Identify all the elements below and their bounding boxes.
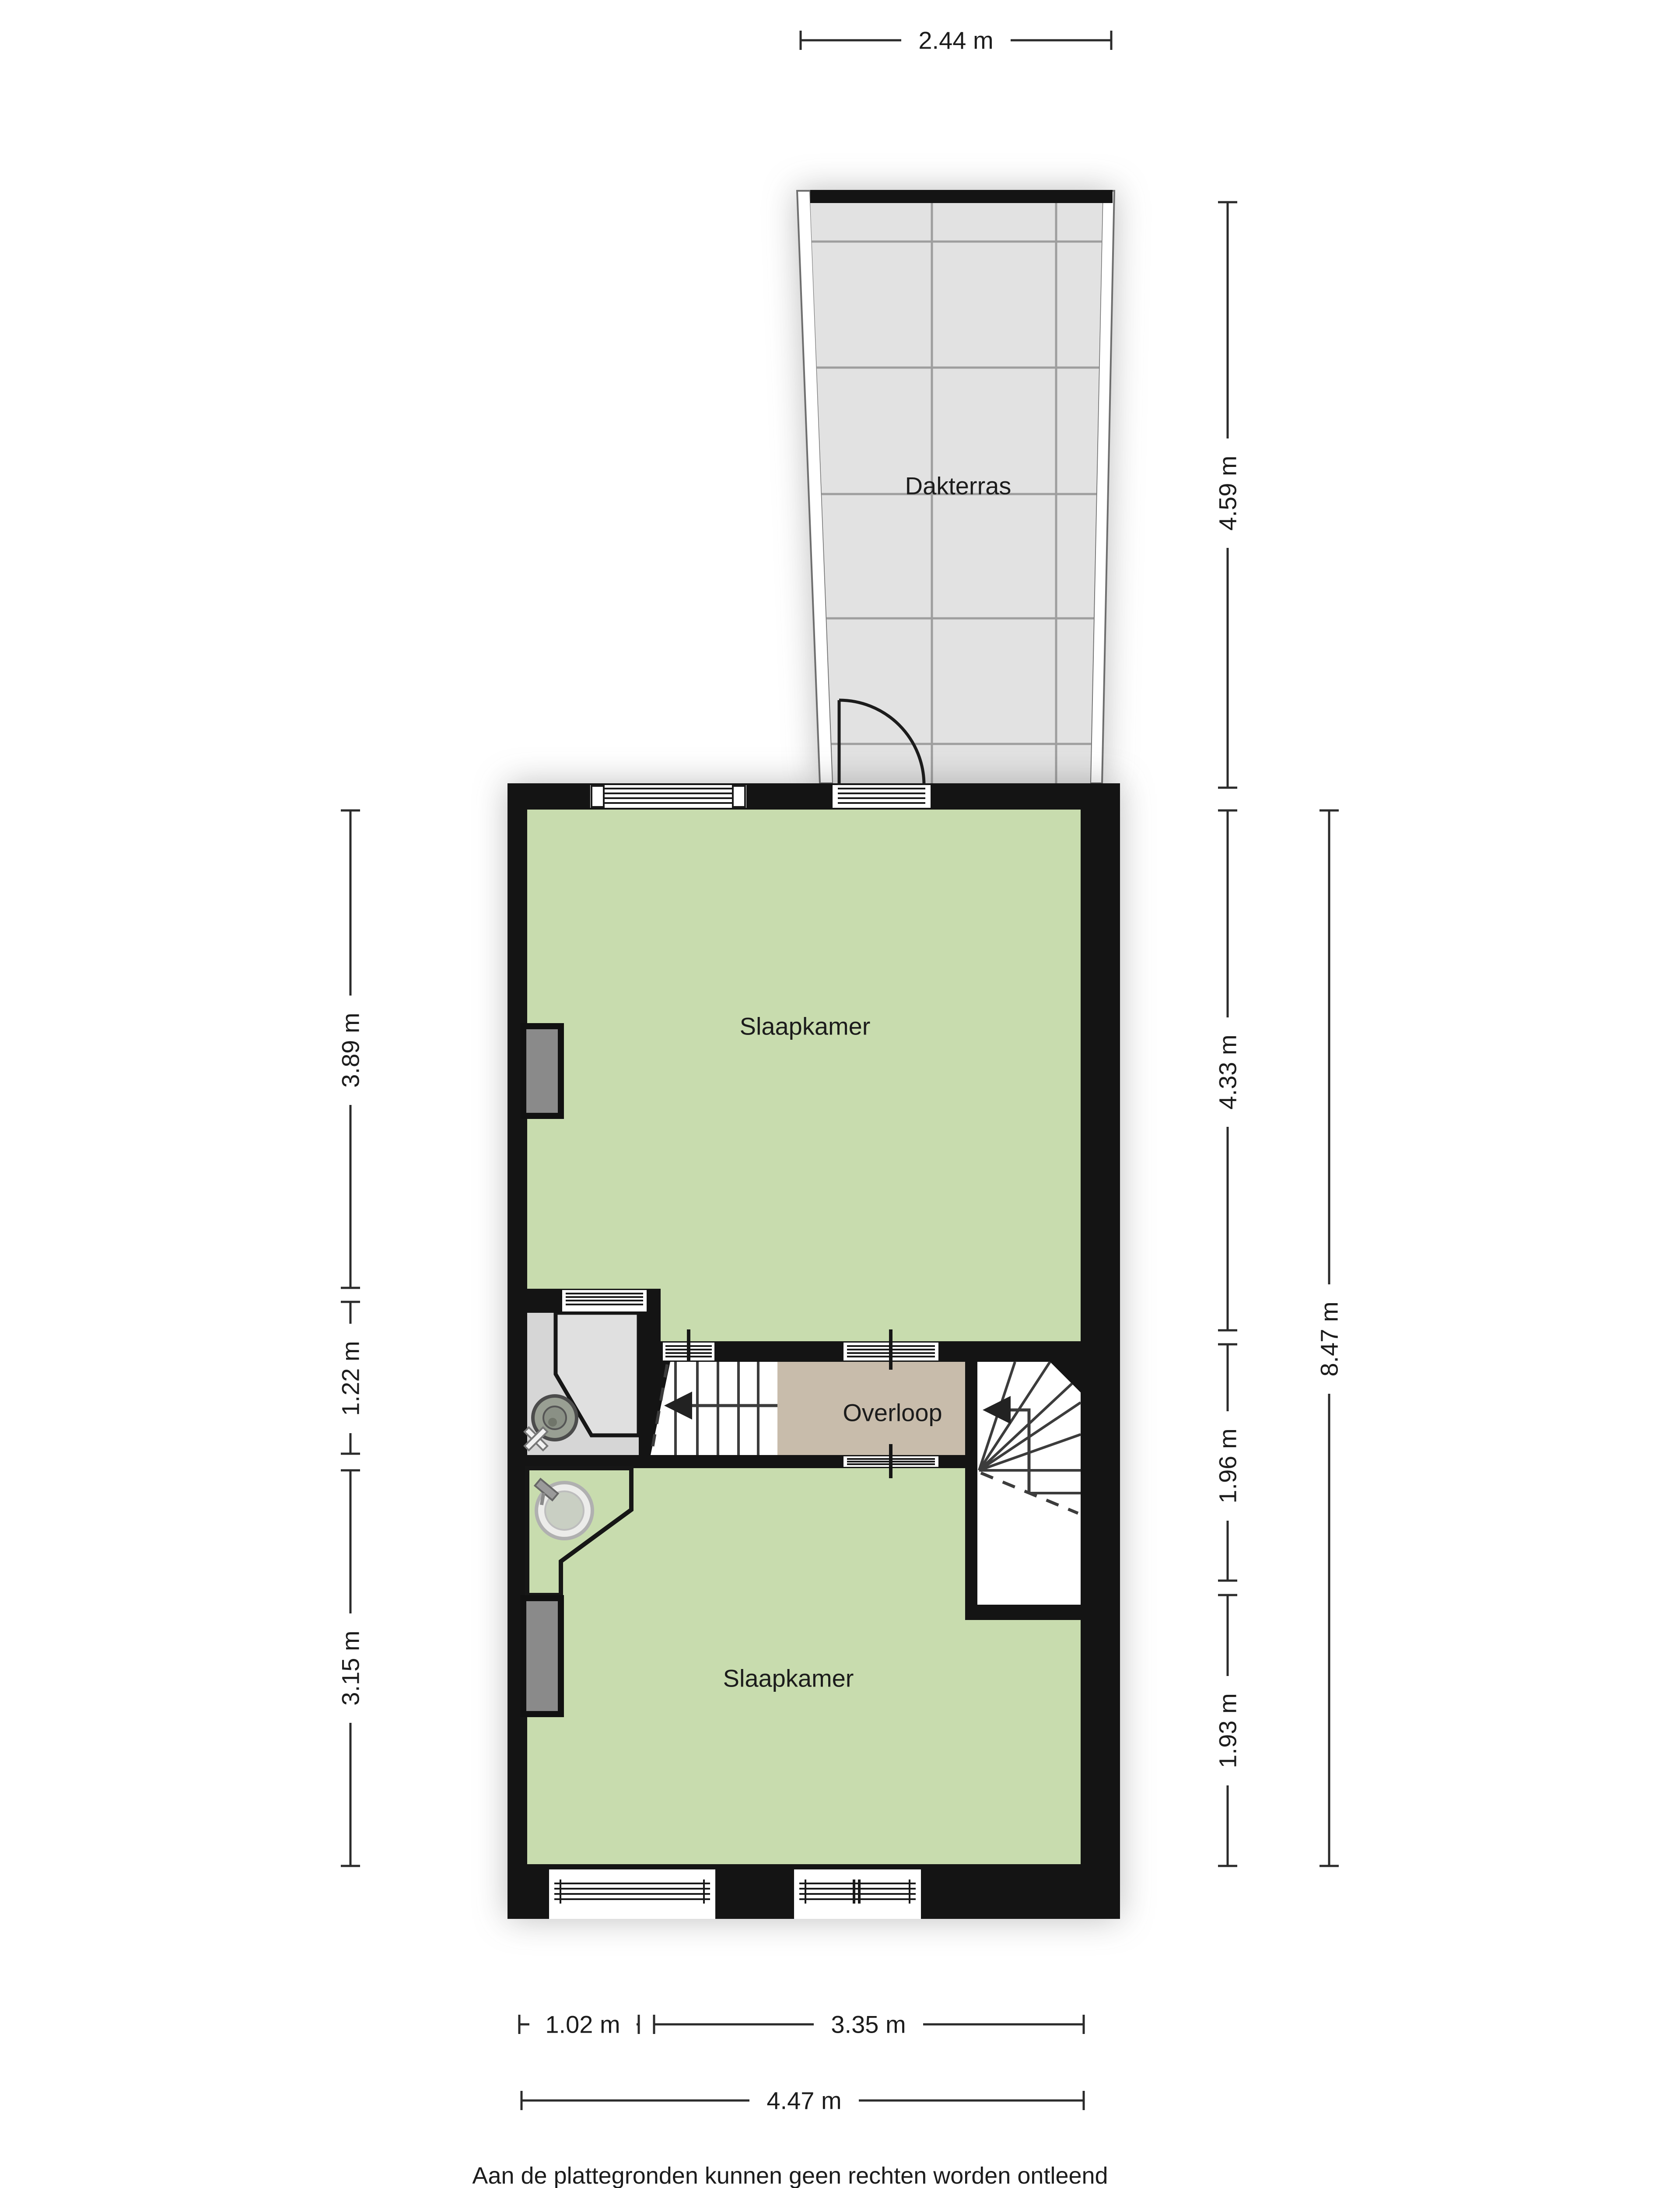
dimension-label: 1.22 m xyxy=(337,1341,364,1416)
wall-stairwell-bottom xyxy=(965,1605,1081,1620)
terrace-top-wall xyxy=(810,190,1113,203)
dimension-left-column: 3.89 m 1.22 m 3.15 m xyxy=(336,810,364,1866)
dimension-bottom-row: 1.02 m 3.35 m xyxy=(519,2010,1084,2038)
room-label-slaapkamer-top: Slaapkamer xyxy=(740,1013,871,1040)
slaapkamer-top-floor xyxy=(527,810,1081,1341)
dimension-right-total: 8.47 m xyxy=(1315,810,1343,1866)
wall-overloop-stairwell xyxy=(965,1362,977,1620)
dimension-label: 3.35 m xyxy=(831,2011,906,2038)
room-label-slaapkamer-bottom: Slaapkamer xyxy=(723,1665,854,1692)
main-building: Slaapkamer Overloop Slaapkamer xyxy=(507,700,1120,1919)
floor-plan-page: Dakterras xyxy=(0,0,1680,2188)
dimension-label: 4.59 m xyxy=(1214,456,1242,530)
staircase-left xyxy=(651,1362,777,1455)
door-threshold-wetroom xyxy=(562,1290,647,1311)
dakterras-room: Dakterras xyxy=(797,190,1114,783)
footer-disclaimer: Aan de plattegronden kunnen geen rechten… xyxy=(472,2163,1108,2188)
radiator-niche-top xyxy=(523,1026,561,1116)
dimension-right-column: 4.33 m 1.96 m 1.93 m xyxy=(1214,810,1242,1866)
dimension-bottom-total: 4.47 m xyxy=(521,2086,1084,2114)
window-bottom-right xyxy=(794,1869,921,1919)
dimension-terrace-height: 4.59 m xyxy=(1214,202,1242,788)
window-bottom-left xyxy=(549,1869,715,1919)
floor-plan-svg: Dakterras xyxy=(0,0,1680,2188)
staircase-right xyxy=(977,1362,1081,1605)
dimension-label: 3.89 m xyxy=(337,1013,364,1087)
dimension-label: 8.47 m xyxy=(1316,1301,1343,1376)
dimension-top-width: 2.44 m xyxy=(801,26,1111,54)
dimension-label: 4.47 m xyxy=(766,2087,841,2114)
dimension-label: 3.15 m xyxy=(337,1630,364,1705)
dimension-label: 1.93 m xyxy=(1214,1693,1242,1768)
room-label-overloop: Overloop xyxy=(843,1399,942,1427)
dimension-label: 1.02 m xyxy=(545,2011,620,2038)
room-label-dakterras: Dakterras xyxy=(905,472,1011,500)
dimension-label: 1.96 m xyxy=(1214,1428,1242,1503)
dimension-label: 4.33 m xyxy=(1214,1034,1242,1109)
radiator-niche-bottom xyxy=(523,1598,561,1714)
window-top xyxy=(590,785,746,808)
dimension-label: 2.44 m xyxy=(918,27,993,54)
